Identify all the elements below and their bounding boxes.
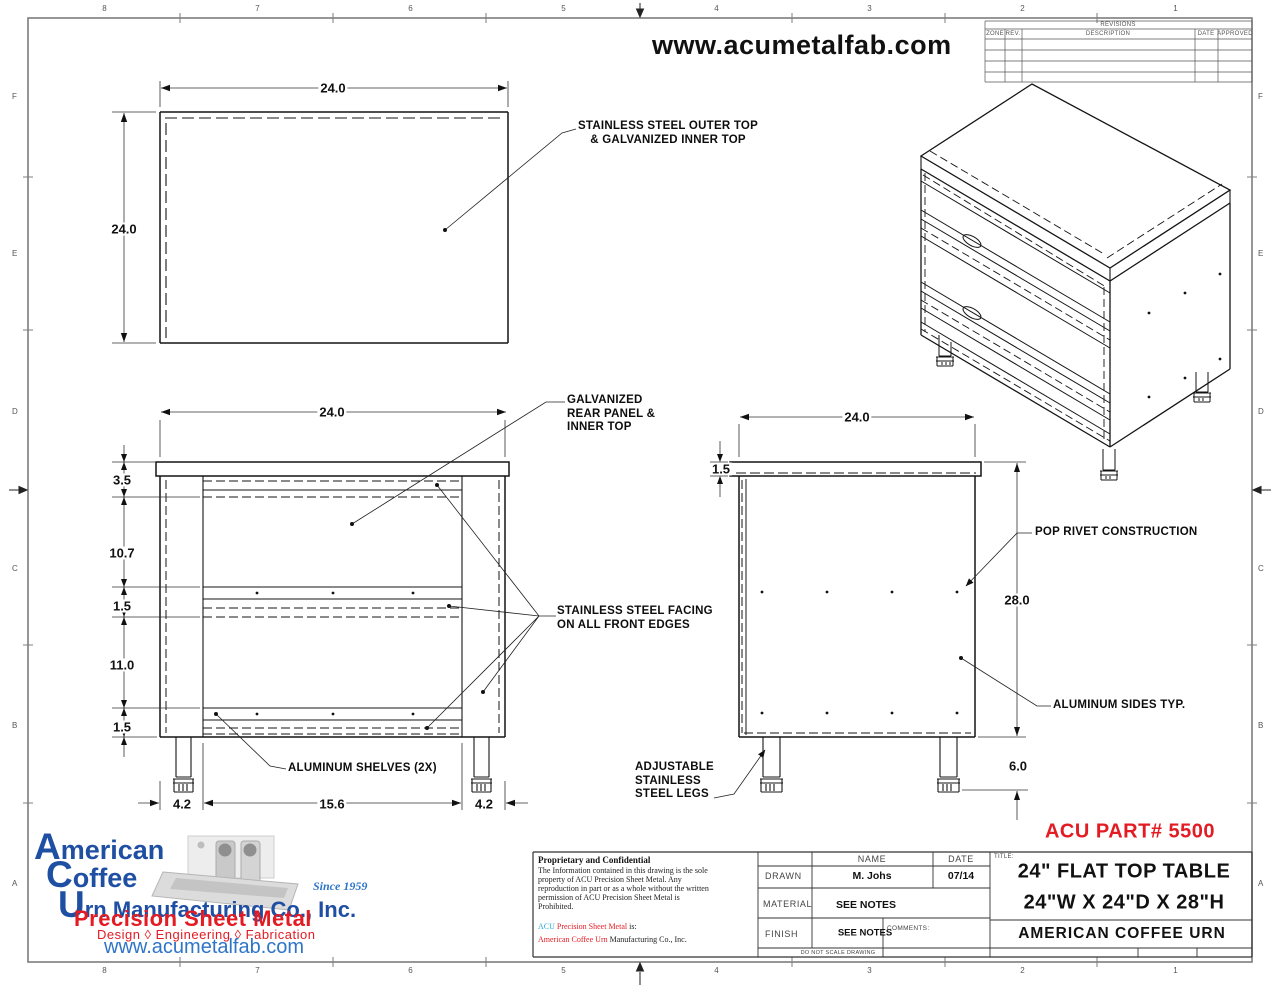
front-opening-width-dim: 15.6 bbox=[317, 798, 346, 811]
drawing-title-line1: 24" FLAT TOP TABLE bbox=[1018, 861, 1231, 884]
company-name: AMERICAN COFFEE URN bbox=[1018, 925, 1226, 943]
revisions-col-description: DESCRIPTION bbox=[1086, 31, 1130, 37]
proprietary-line: permission of ACU Precision Sheet Metal … bbox=[538, 893, 680, 902]
name-header: NAME bbox=[858, 854, 886, 864]
zone-number: 8 bbox=[102, 966, 106, 975]
revisions-col-date: DATE bbox=[1198, 31, 1215, 37]
front-leg-right-dim: 4.2 bbox=[473, 798, 495, 811]
logo-website: www.acumetalfab.com bbox=[104, 936, 304, 959]
callout-rear-panel: GALVANIZED REAR PANEL & INNER TOP bbox=[567, 394, 655, 435]
top-view-width-dim: 24.0 bbox=[318, 82, 347, 95]
proprietary-acu-line: ACU Precision Sheet Metal is: bbox=[538, 922, 637, 931]
comments-label: COMMENTS: bbox=[887, 925, 929, 932]
zone-letter: C bbox=[12, 564, 18, 573]
proprietary-title: Proprietary and Confidential bbox=[538, 855, 650, 865]
zone-number: 8 bbox=[102, 4, 106, 13]
zone-number: 7 bbox=[255, 966, 259, 975]
front-shelf2-dim: 1.5 bbox=[111, 721, 133, 734]
zone-number: 6 bbox=[408, 966, 412, 975]
zone-number: 1 bbox=[1173, 4, 1177, 13]
zone-number: 4 bbox=[714, 966, 718, 975]
part-number: ACU PART# 5500 bbox=[1045, 821, 1215, 844]
iso-view-lines bbox=[921, 84, 1230, 480]
proprietary-line: Prohibited. bbox=[538, 902, 573, 911]
zone-letter: F bbox=[1258, 92, 1264, 101]
zone-number: 3 bbox=[867, 966, 871, 975]
drawn-name: M. Johs bbox=[852, 870, 891, 882]
side-view-lines bbox=[710, 414, 1051, 820]
logo-since: Since 1959 bbox=[313, 879, 367, 894]
zone-letter: D bbox=[12, 407, 18, 416]
finish-label: FINISH bbox=[765, 929, 798, 939]
finish-value: SEE NOTES bbox=[838, 928, 892, 939]
callout-adjustable-legs: ADJUSTABLE STAINLESS STEEL LEGS bbox=[635, 761, 714, 802]
material-label: MATERIAL bbox=[763, 899, 812, 909]
do-not-scale-note: DO NOT SCALE DRAWING bbox=[801, 950, 876, 956]
zone-letter: F bbox=[12, 92, 18, 101]
front-view-lines bbox=[112, 402, 565, 810]
top-view-depth-dim: 24.0 bbox=[109, 223, 138, 236]
zone-letter: D bbox=[1258, 407, 1264, 416]
header-website: www.acumetalfab.com bbox=[652, 30, 952, 61]
side-top-dim: 1.5 bbox=[710, 463, 732, 476]
zone-letter: A bbox=[1258, 879, 1264, 888]
front-top-dim: 3.5 bbox=[111, 474, 133, 487]
callout-facing: STAINLESS STEEL FACING ON ALL FRONT EDGE… bbox=[557, 605, 713, 632]
zone-letters-right: FEDCBA bbox=[1258, 18, 1264, 962]
callout-shelves: ALUMINUM SHELVES (2X) bbox=[288, 762, 437, 776]
zone-letter: E bbox=[12, 249, 18, 258]
proprietary-line: The Information contained in this drawin… bbox=[538, 866, 708, 875]
callout-pop-rivet: POP RIVET CONSTRUCTION bbox=[1035, 526, 1197, 540]
top-view-lines bbox=[112, 81, 576, 343]
zone-letters-left: FEDCBA bbox=[12, 18, 18, 962]
drawn-date: 07/14 bbox=[948, 870, 974, 882]
revisions-col-approved: APPROVED bbox=[1217, 31, 1253, 37]
zone-number: 5 bbox=[561, 4, 565, 13]
side-leg-height-dim: 6.0 bbox=[1007, 760, 1029, 773]
drawn-label: DRAWN bbox=[765, 871, 802, 881]
callout-outer-top: STAINLESS STEEL OUTER TOP & GALVANIZED I… bbox=[578, 120, 758, 147]
zone-letter: B bbox=[1258, 721, 1264, 730]
proprietary-company-line: American Coffee Urn Manufacturing Co., I… bbox=[538, 935, 687, 944]
front-upper-opening-dim: 10.7 bbox=[107, 547, 136, 560]
side-width-dim: 24.0 bbox=[842, 411, 871, 424]
material-value: SEE NOTES bbox=[836, 899, 896, 911]
zone-number: 1 bbox=[1173, 966, 1177, 975]
revisions-col-rev: REV. bbox=[1006, 31, 1021, 37]
zone-letter: A bbox=[12, 879, 18, 888]
zone-numbers-bottom: 87654321 bbox=[28, 966, 1252, 975]
drawing-sheet: 87654321 87654321 FEDCBA FEDCBA www.acum… bbox=[0, 0, 1280, 988]
revisions-title: REVISIONS bbox=[1100, 22, 1135, 28]
front-width-dim: 24.0 bbox=[317, 406, 346, 419]
zone-number: 3 bbox=[867, 4, 871, 13]
title-label: TITLE: bbox=[994, 854, 1014, 860]
drawing-title-line2: 24"W X 24"D X 28"H bbox=[1024, 892, 1225, 915]
zone-letter: C bbox=[1258, 564, 1264, 573]
side-height-dim: 28.0 bbox=[1002, 594, 1031, 607]
zone-letter: B bbox=[12, 721, 18, 730]
proprietary-line: reproduction in part or as a whole witho… bbox=[538, 884, 709, 893]
zone-number: 5 bbox=[561, 966, 565, 975]
revisions-col-zone: ZONE bbox=[986, 31, 1004, 37]
zone-number: 2 bbox=[1020, 966, 1024, 975]
front-lower-opening-dim: 11.0 bbox=[108, 659, 137, 672]
zone-letter: E bbox=[1258, 249, 1264, 258]
callout-aluminum-sides: ALUMINUM SIDES TYP. bbox=[1053, 699, 1185, 713]
front-leg-left-dim: 4.2 bbox=[171, 798, 193, 811]
zone-number: 7 bbox=[255, 4, 259, 13]
front-shelf1-dim: 1.5 bbox=[111, 600, 133, 613]
zone-number: 4 bbox=[714, 4, 718, 13]
date-header: DATE bbox=[948, 854, 974, 864]
zone-number: 2 bbox=[1020, 4, 1024, 13]
proprietary-line: property of ACU Precision Sheet Metal. A… bbox=[538, 875, 682, 884]
zone-numbers-top: 87654321 bbox=[28, 4, 1252, 13]
zone-number: 6 bbox=[408, 4, 412, 13]
